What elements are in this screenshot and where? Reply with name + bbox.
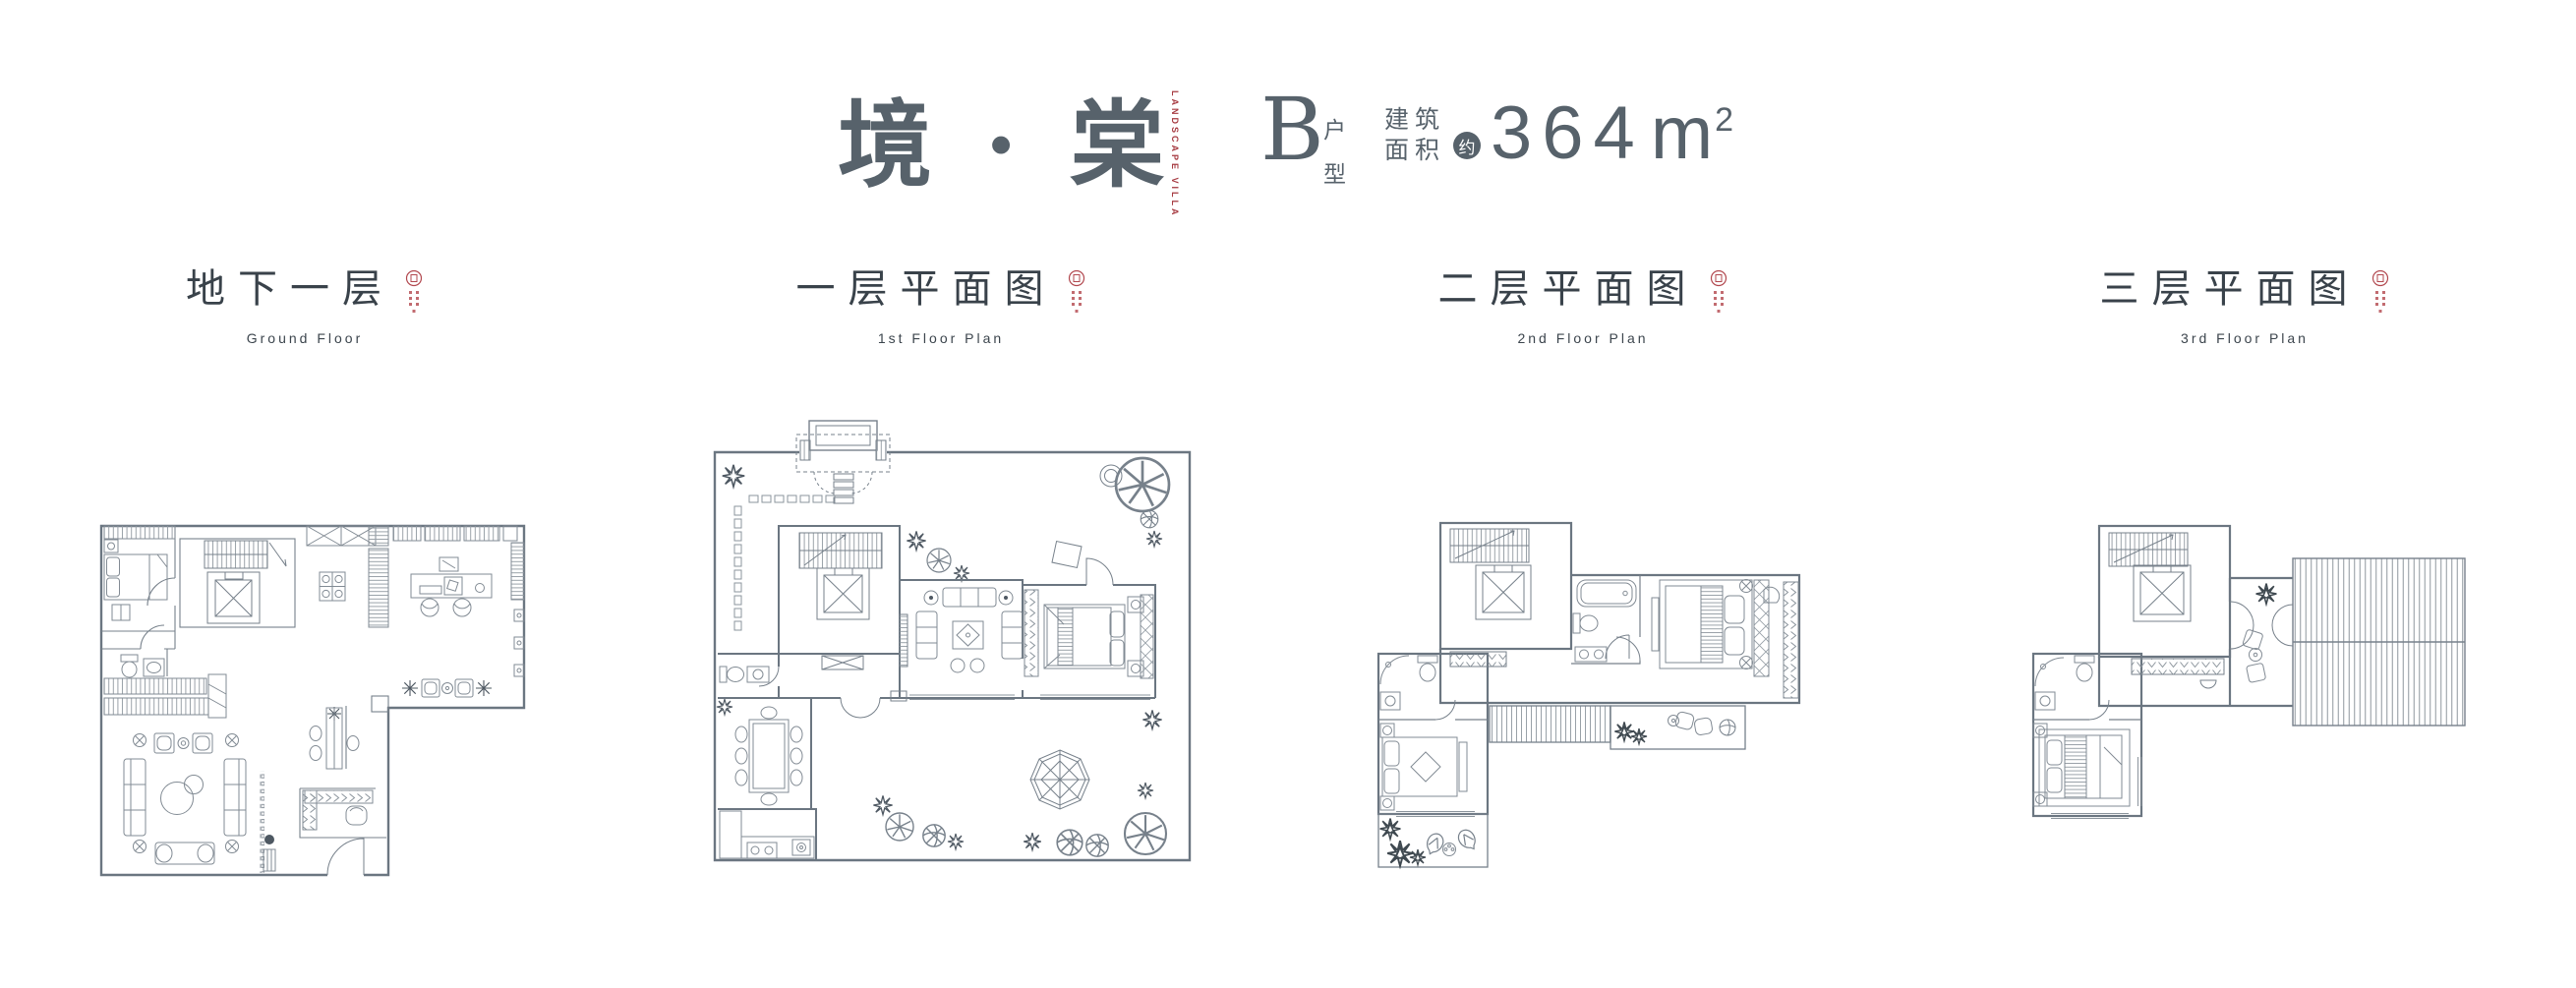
- label-ground-floor-cn: 地下一层: [186, 267, 394, 311]
- unit-type-suffix: 户 型: [1323, 111, 1346, 189]
- label-ground-floor-en: Ground Floor: [147, 330, 462, 346]
- label-2nd-floor-cn: 二层平面图: [1438, 267, 1699, 311]
- label-1st-floor: 一层平面图 1st Floor Plan: [784, 267, 1098, 346]
- seal-icon: [1709, 269, 1728, 319]
- building-area-label: 建筑 面积: [1384, 104, 1445, 165]
- seal-icon: [404, 269, 424, 319]
- third-floor-plan-drawing: [2006, 511, 2478, 904]
- logo-line-landscape: LANDSCAPE: [1170, 90, 1180, 172]
- label-2nd-floor-en: 2nd Floor Plan: [1426, 330, 1740, 346]
- floorplan-sheet: 境 · 棠 LANDSCAPE VILLA B 户 型 建筑 面积 约 364m…: [0, 0, 2576, 988]
- logo-line-villa: VILLA: [1170, 178, 1180, 218]
- area-unit: m: [1651, 91, 1713, 175]
- second-floor-plan-drawing: [1357, 511, 1829, 924]
- label-1st-floor-en: 1st Floor Plan: [784, 330, 1098, 346]
- unit-suffix-top: 户: [1323, 111, 1346, 145]
- project-title: 境 · 棠: [838, 69, 1174, 205]
- label-1st-floor-cn: 一层平面图: [796, 267, 1057, 311]
- label-ground-floor: 地下一层 Ground Floor: [147, 267, 462, 346]
- seal-icon: [1067, 269, 1086, 319]
- area-exponent: 2: [1715, 101, 1733, 139]
- building-area-value: 364m2: [1491, 90, 1733, 176]
- first-floor-plan-drawing: [698, 413, 1219, 904]
- label-3rd-floor-cn: 三层平面图: [2100, 267, 2361, 311]
- label-2nd-floor: 二层平面图 2nd Floor Plan: [1426, 267, 1740, 346]
- unit-type-letter: B: [1260, 87, 1324, 173]
- approx-badge: 约: [1453, 132, 1481, 159]
- area-label-row2: 面积: [1384, 135, 1445, 165]
- area-number: 364: [1491, 91, 1645, 175]
- seal-icon: [2371, 269, 2390, 319]
- landscape-villa-vertical-logo: LANDSCAPE VILLA: [1168, 90, 1181, 189]
- unit-suffix-bottom: 型: [1323, 155, 1346, 189]
- label-3rd-floor-en: 3rd Floor Plan: [2087, 330, 2402, 346]
- label-3rd-floor: 三层平面图 3rd Floor Plan: [2087, 267, 2402, 346]
- area-label-row1: 建筑: [1384, 104, 1445, 135]
- ground-floor-plan-drawing: [88, 511, 580, 904]
